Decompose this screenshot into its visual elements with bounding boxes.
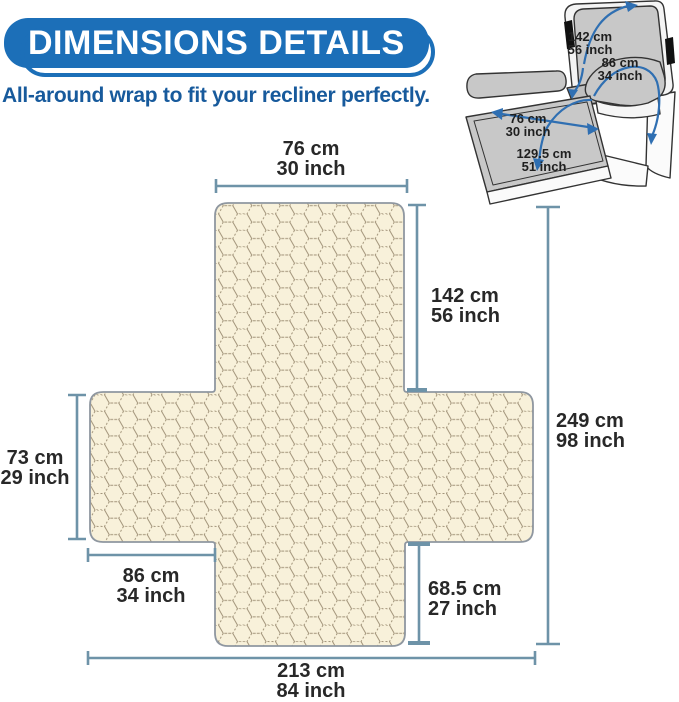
recliner-dim-seat-length-inch: 51 inch [512,160,576,173]
dim-total-width-cm: 213 cm [221,661,401,681]
dim-armrest-width-cm: 86 cm [76,566,226,586]
recliner-dim-arm-wrap: 86 cm 34 inch [592,56,648,82]
dim-top-width-cm: 76 cm [231,139,391,159]
page: DIMENSIONS DETAILS All-around wrap to fi… [0,0,679,702]
dim-total-length: 249 cm 98 inch [556,411,625,451]
dimline-top-width [216,179,407,193]
recliner-dim-footrest-width-inch: 30 inch [500,125,556,138]
dimline-front-length [408,544,430,643]
dim-back-length-cm: 142 cm [431,286,500,306]
dim-total-length-inch: 98 inch [556,431,625,451]
recliner-left-arm [467,71,566,98]
recliner-dim-back-height: 142 cm 56 inch [560,30,620,56]
dim-side-height-cm: 73 cm [0,448,70,468]
subtitle: All-around wrap to fit your recliner per… [2,84,430,108]
dim-front-length-inch: 27 inch [428,599,501,619]
dim-back-length-inch: 56 inch [431,306,500,326]
recliner-dim-footrest-width: 76 cm 30 inch [500,112,556,138]
dimline-side-height [68,395,86,539]
dim-side-height: 73 cm 29 inch [0,448,70,488]
dim-total-length-cm: 249 cm [556,411,625,431]
dim-total-width: 213 cm 84 inch [221,661,401,701]
dim-armrest-width: 86 cm 34 inch [76,566,226,606]
dim-front-length-cm: 68.5 cm [428,579,501,599]
dimline-armrest-width [88,548,215,562]
dim-front-length: 68.5 cm 27 inch [428,579,501,619]
dim-top-width: 76 cm 30 inch [231,139,391,179]
dim-armrest-width-inch: 34 inch [76,586,226,606]
recliner-dim-arm-wrap-inch: 34 inch [592,69,648,82]
recliner-dim-seat-length: 129.5 cm 51 inch [512,147,576,173]
dim-side-height-inch: 29 inch [0,468,70,488]
dimline-back-length [407,205,427,390]
title-badge: DIMENSIONS DETAILS [4,18,429,68]
dim-total-width-inch: 84 inch [221,681,401,701]
dim-top-width-inch: 30 inch [231,159,391,179]
dim-back-length: 142 cm 56 inch [431,286,500,326]
